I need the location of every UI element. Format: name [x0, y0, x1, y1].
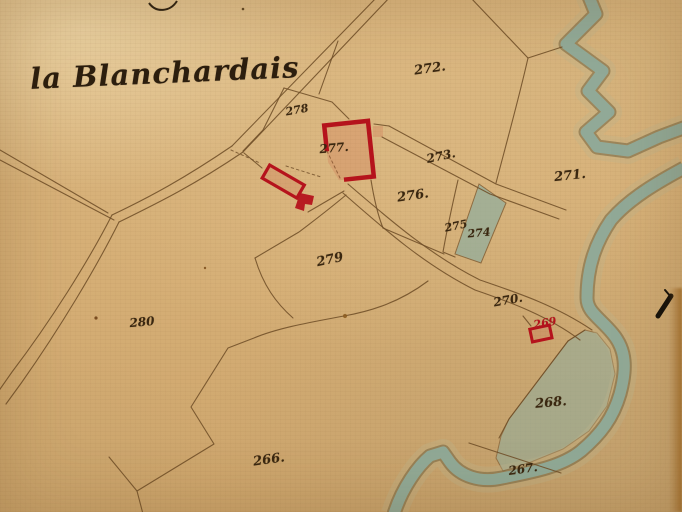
cadastral-map: 272.278277.273.271.276.275274279270.2692…: [0, 0, 682, 512]
vignette-overlay: [0, 0, 682, 512]
